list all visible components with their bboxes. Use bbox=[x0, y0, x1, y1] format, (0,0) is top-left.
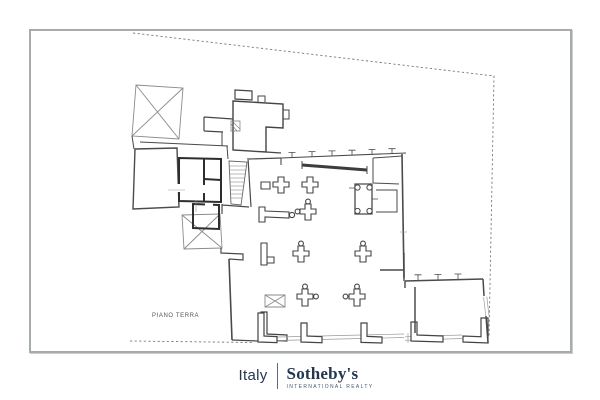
brand-wordmark: Sotheby's bbox=[287, 365, 359, 382]
crossed-void-boxes bbox=[132, 85, 285, 307]
logo-divider bbox=[277, 363, 278, 389]
brand-block: Sotheby's INTERNATIONAL REALTY bbox=[287, 365, 374, 390]
brand-tagline: INTERNATIONAL REALTY bbox=[287, 384, 374, 390]
floor-level-label: PIANO TERRA bbox=[152, 313, 199, 319]
page: { "frame": { "border_color": "#a6abae" }… bbox=[0, 0, 600, 400]
hall-columns bbox=[259, 177, 371, 341]
hall-left-wall bbox=[221, 204, 249, 340]
country-label: Italy bbox=[239, 367, 268, 388]
footer-logo: Italy Sotheby's INTERNATIONAL REALTY bbox=[6, 358, 600, 396]
upper-room bbox=[204, 90, 289, 153]
right-structure bbox=[349, 154, 404, 278]
floor-plan-drawing: PIANO TERRA bbox=[0, 0, 600, 400]
staircase bbox=[229, 158, 251, 207]
service-room-cluster bbox=[179, 158, 221, 229]
